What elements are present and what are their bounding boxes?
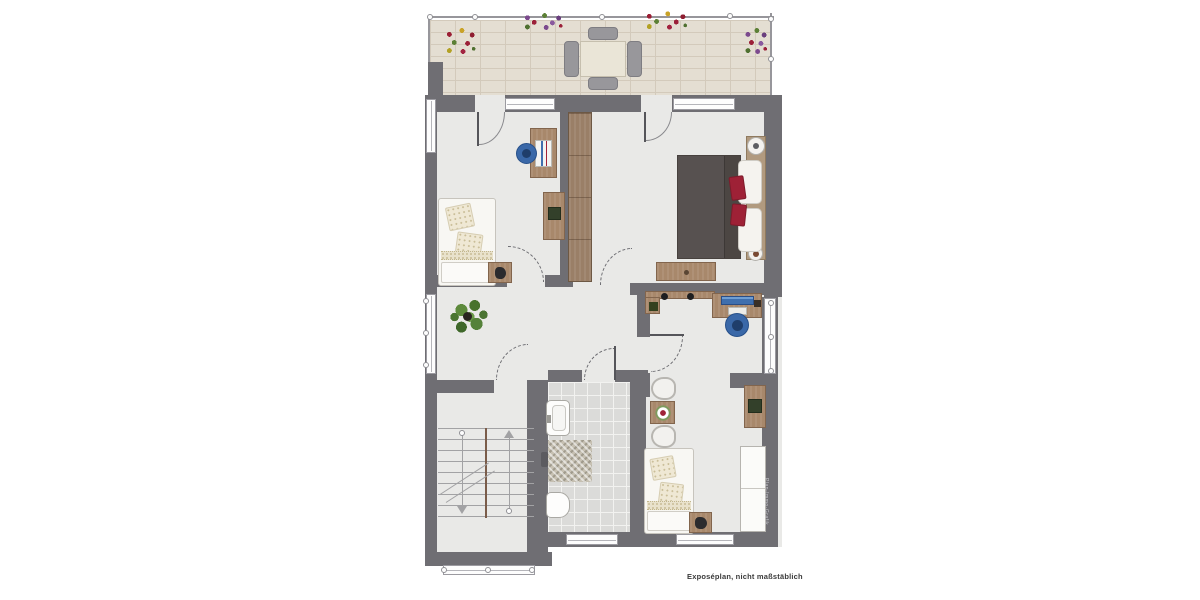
balcony-chair-south (588, 77, 618, 90)
bed-pillow (445, 203, 475, 232)
sink-faucet (547, 415, 551, 423)
armchair (651, 377, 676, 400)
bed-foot-roll (441, 262, 493, 283)
armchair (651, 425, 676, 448)
vertical-watermark: Plan-Immo-Grafik (763, 478, 769, 525)
towel-radiator (541, 452, 548, 467)
flower-vase (655, 405, 671, 421)
window-post (485, 567, 491, 573)
staircase (438, 428, 534, 518)
wall (548, 370, 582, 382)
shelf-plant (649, 302, 658, 311)
window-post (423, 330, 429, 336)
flower-box (516, 13, 568, 30)
outside-mask (548, 547, 792, 572)
wardrobe (568, 112, 592, 282)
monitor (721, 296, 754, 305)
cabinet (543, 192, 565, 240)
desk-item (754, 300, 761, 307)
wall (528, 380, 550, 393)
dresser-handle (684, 270, 689, 275)
flower-box (637, 11, 693, 30)
railing-post (472, 14, 478, 20)
plant-pot-center (463, 312, 472, 321)
bed-pillow (649, 455, 676, 481)
bedside-lamp (747, 137, 765, 155)
window (426, 99, 436, 153)
window-post (423, 362, 429, 368)
laptop (535, 140, 552, 167)
nightstand-decor (495, 267, 506, 279)
stair-center-line (485, 428, 487, 518)
bed-blanket-trim (441, 251, 493, 260)
balcony-chair-north (588, 27, 618, 40)
balcony-railing-left (428, 16, 430, 66)
dresser (656, 262, 716, 281)
sink (546, 400, 570, 436)
stair-arrow-down-tail (459, 430, 465, 436)
red-accent-pillow (730, 203, 747, 226)
dining-table (580, 41, 626, 77)
wall (425, 380, 494, 393)
window-post (768, 334, 774, 340)
window-post (441, 567, 447, 573)
stair-arrow-down-head (457, 506, 467, 514)
stair-arrow-up-line (509, 436, 510, 510)
stair-arrow-up-tail (506, 508, 512, 514)
window-post (423, 298, 429, 304)
red-accent-pillow (728, 175, 746, 201)
wall (764, 95, 782, 297)
window-post (529, 567, 535, 573)
wardrobe-divider (741, 488, 765, 489)
stair-arrow-up-head (504, 430, 514, 438)
desk (744, 385, 766, 428)
stair-arrow-down-line (462, 434, 463, 506)
plan-caption: Exposéplan, nicht maßstäblich (687, 572, 803, 581)
window-post (768, 300, 774, 306)
cabinet-decor (548, 207, 561, 220)
railing-post (768, 56, 774, 62)
window-post (768, 368, 774, 374)
nightstand (488, 262, 512, 283)
shelf-speaker (687, 293, 694, 300)
window (566, 534, 618, 545)
window (673, 98, 735, 110)
flower-box (441, 26, 479, 56)
balcony-chair-east (627, 41, 642, 77)
office-chair (725, 313, 749, 337)
shelf-planter (645, 297, 660, 314)
railing-post (768, 16, 774, 22)
desk-chair (516, 143, 537, 164)
shelf-speaker (661, 293, 668, 300)
railing-post (599, 14, 605, 20)
toilet (546, 492, 570, 518)
bed-blanket-trim (647, 501, 691, 510)
window (676, 534, 734, 545)
nightstand (689, 512, 712, 533)
railing-post (727, 13, 733, 19)
single-bed (644, 448, 694, 534)
balcony-chair-west (564, 41, 579, 77)
nightstand-decor (695, 517, 707, 529)
sink-basin (552, 405, 566, 431)
bed-foot-roll (647, 511, 691, 531)
floorplan-canvas: Plan-Immo-Grafik Exposéplan, nicht maßst… (0, 0, 1200, 600)
railing-post (427, 14, 433, 20)
wall (428, 62, 443, 96)
door-leaf (614, 346, 616, 380)
window (505, 98, 555, 110)
shower-mat (548, 440, 592, 482)
side-table (650, 401, 675, 424)
desk-decor (748, 399, 762, 413)
flower-box (742, 26, 769, 56)
